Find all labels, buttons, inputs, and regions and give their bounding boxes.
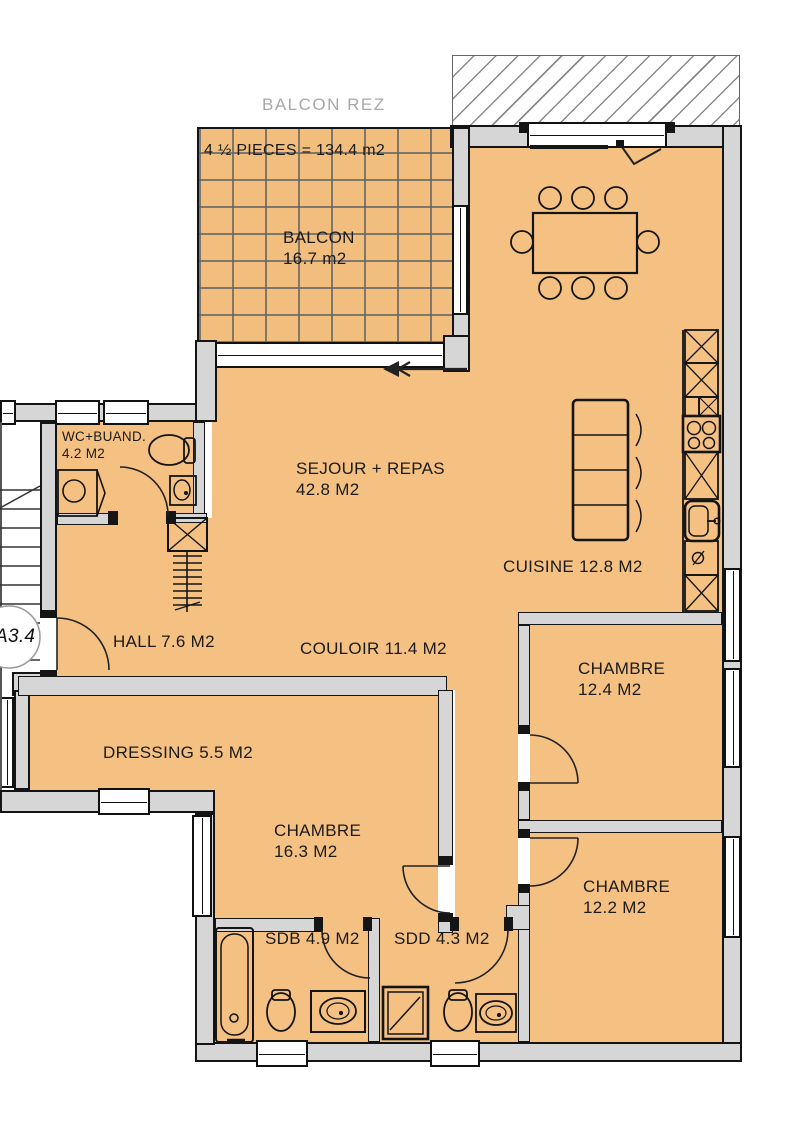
entrance-door [57, 618, 109, 670]
hall-cabinet-icon [168, 518, 207, 612]
chambre-est-door [530, 735, 578, 783]
sliding-door-arrow [383, 361, 467, 377]
room-label-sejour: SEJOUR + REPAS42.8 M2 [296, 458, 445, 500]
room-label-chambre-sud: CHAMBRE12.2 M2 [583, 876, 670, 918]
sdd-sink-icon [476, 994, 516, 1032]
bathtub-icon [216, 928, 253, 1042]
kitchen-island [573, 400, 641, 540]
room-label-chambre-est: CHAMBRE12.4 M2 [578, 658, 665, 700]
unit-ref-label: A3.4 [0, 626, 35, 647]
wc-toilet-icon [149, 435, 195, 465]
dining-table [511, 187, 659, 299]
room-label-hall: HALL 7.6 M2 [113, 631, 215, 652]
room-label-cuisine: CUISINE 12.8 M2 [503, 556, 643, 577]
wc-sink-icon [170, 476, 196, 505]
washing-machine-icon [58, 470, 105, 516]
room-label-wc: WC+BUAND.4.2 M2 [62, 428, 146, 462]
balcon-rez-label: BALCON REZ [262, 94, 386, 115]
floor-plan: BALCON REZ 4 ½ PIECES = 134.4 m2 BALCON1… [0, 0, 800, 1137]
room-label-dressing: DRESSING 5.5 M2 [103, 742, 253, 763]
sdb-sink-icon [311, 991, 365, 1032]
kitchen-counter [683, 330, 720, 612]
chambre-sud-door [530, 838, 578, 886]
cooktop-icon [683, 416, 720, 452]
chambre-ouest-door [403, 866, 450, 913]
wc-door [120, 467, 168, 515]
room-label-sdb: SDB 4.9 M2 [265, 928, 360, 949]
sdb-toilet-icon [267, 990, 295, 1031]
sdd-toilet-icon [444, 990, 472, 1031]
room-label-chambre-ouest: CHAMBRE16.3 M2 [274, 820, 361, 862]
fixtures-layer [0, 0, 800, 1137]
shower-icon [383, 987, 428, 1039]
dining-door [530, 140, 661, 164]
unit-size-label: 4 ½ PIECES = 134.4 m2 [204, 140, 385, 161]
room-label-sdd: SDD 4.3 M2 [394, 928, 490, 949]
room-label-balcon: BALCON16.7 m2 [283, 227, 355, 269]
room-label-couloir: COULOIR 11.4 M2 [300, 638, 447, 659]
